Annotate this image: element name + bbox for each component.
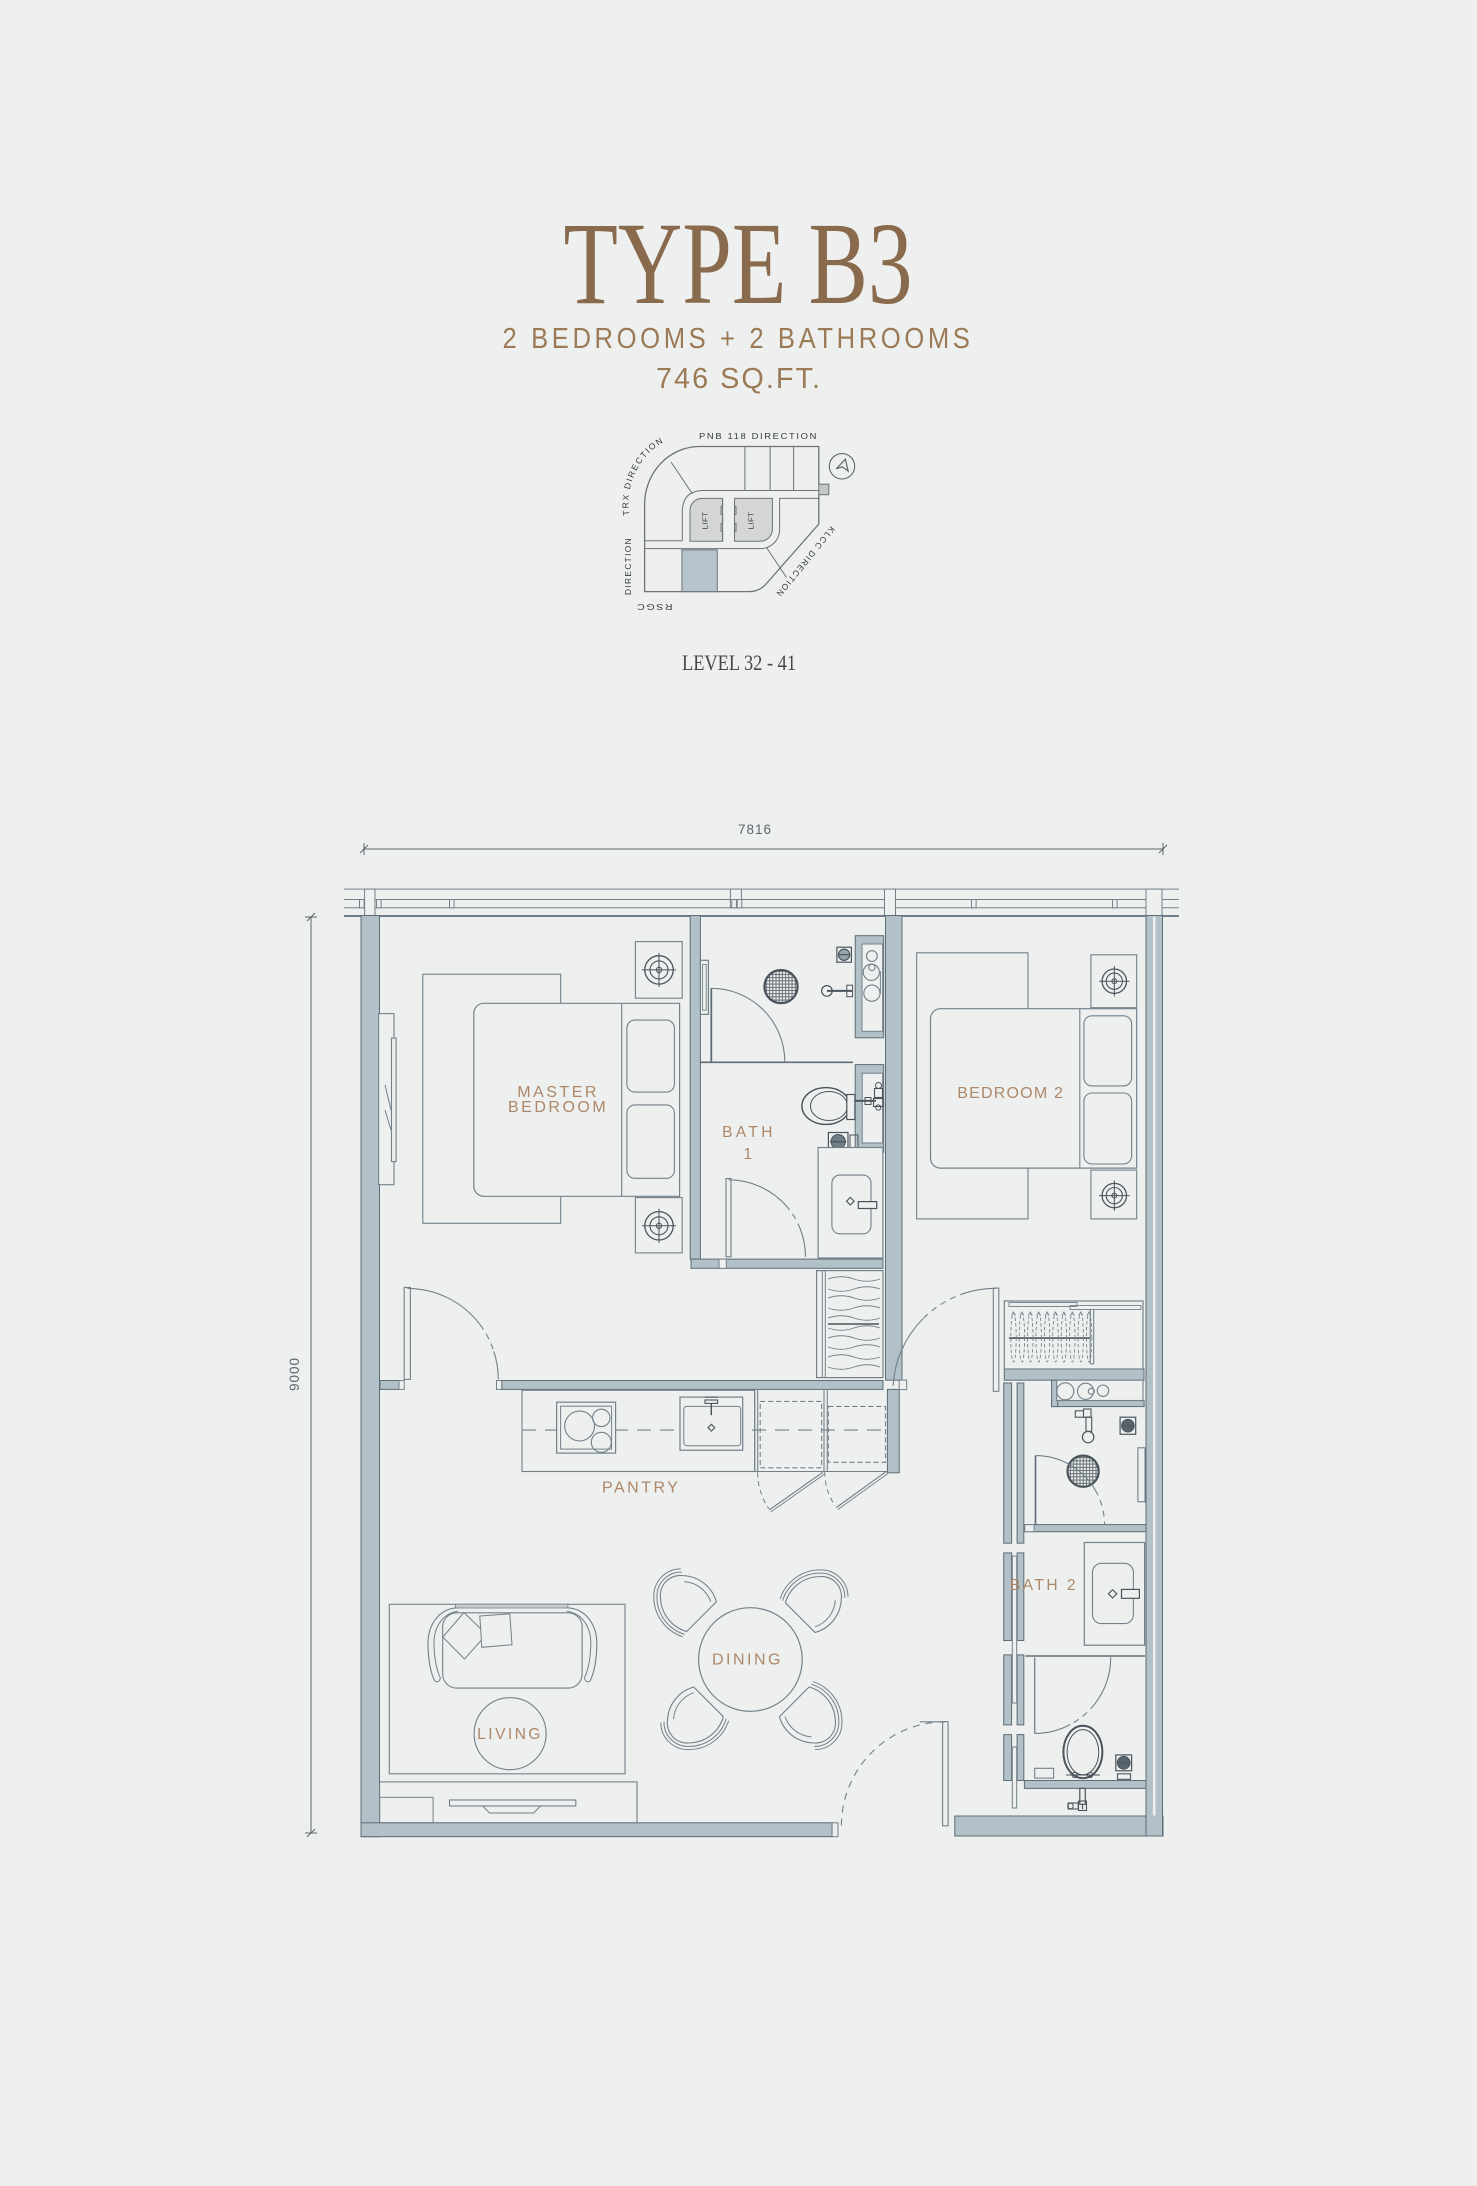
svg-text:BATH: BATH (722, 1124, 776, 1141)
svg-text:RSGC: RSGC (636, 602, 673, 612)
svg-text:BATH 2: BATH 2 (1010, 1577, 1078, 1594)
svg-text:746 SQ.FT.: 746 SQ.FT. (656, 363, 822, 395)
svg-text:DIRECTION: DIRECTION (623, 537, 633, 595)
svg-text:PANTRY: PANTRY (602, 1479, 680, 1496)
svg-text:BEDROOM 2: BEDROOM 2 (957, 1085, 1064, 1102)
svg-text:7816: 7816 (738, 822, 772, 837)
svg-text:1: 1 (743, 1146, 754, 1163)
svg-text:9000: 9000 (287, 1357, 302, 1391)
svg-text:LEVEL 32 - 41: LEVEL 32 - 41 (682, 650, 796, 675)
svg-text:DINING: DINING (712, 1652, 783, 1669)
svg-text:2 BEDROOMS + 2 BATHROOMS: 2 BEDROOMS + 2 BATHROOMS (503, 323, 974, 355)
svg-text:LIFT: LIFT (747, 512, 756, 530)
svg-text:BEDROOM: BEDROOM (508, 1099, 608, 1116)
svg-text:PNB 118 DIRECTION: PNB 118 DIRECTION (699, 431, 818, 441)
svg-text:TYPE B3: TYPE B3 (564, 198, 913, 329)
svg-text:LIFT: LIFT (701, 512, 710, 530)
svg-text:LIVING: LIVING (477, 1726, 543, 1743)
